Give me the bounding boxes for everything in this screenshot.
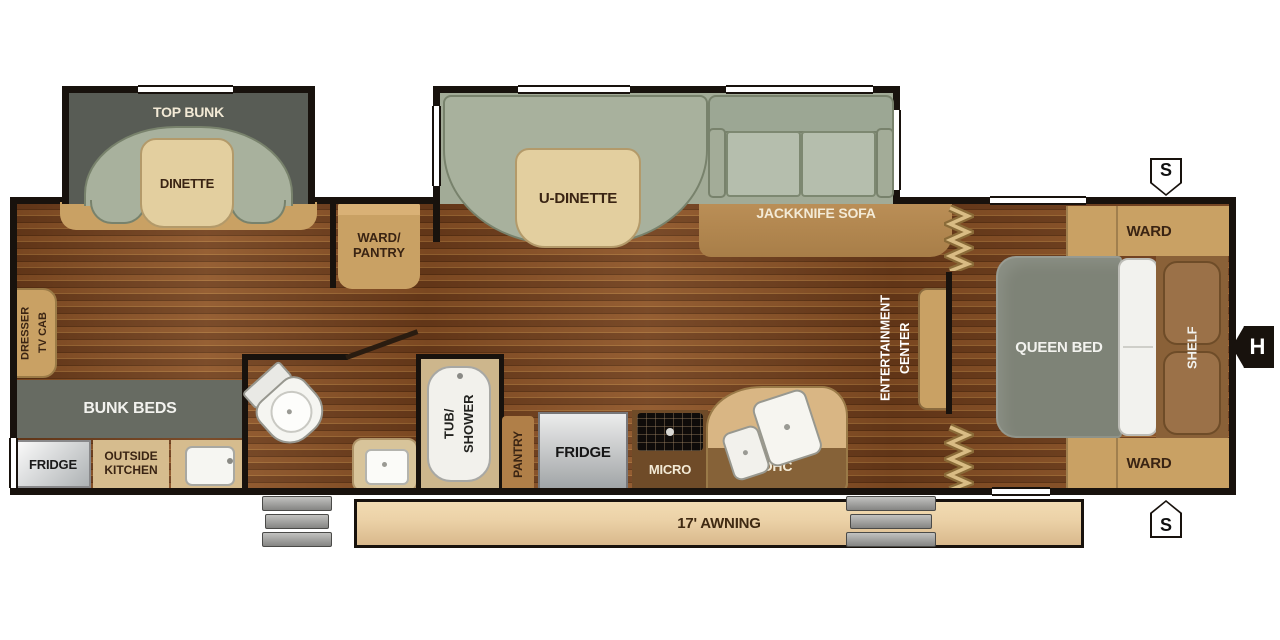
outside-sink-faucet-icon [227, 458, 233, 464]
stabilizer-top-label: S [1152, 160, 1180, 194]
entry-steps [262, 496, 330, 550]
front-slideout-wall-right [308, 86, 315, 204]
ward-pantry-label-line1: WARD/ [357, 231, 400, 246]
kitchen-counter-ohc: OHC [706, 386, 848, 492]
dresser-label-line1: DRESSER [17, 306, 35, 359]
bunk-beds: BUNK BEDS [13, 380, 247, 438]
dinette-table-label: DINETTE [160, 176, 214, 191]
jackknife-sofa-backrest [708, 95, 894, 133]
ward-pantry-wall [330, 202, 336, 288]
jackknife-sofa-cushion-left [726, 131, 801, 197]
window [518, 85, 630, 94]
wall-bottom-2 [1048, 488, 1236, 495]
window [990, 196, 1086, 205]
bathroom-sink [352, 438, 418, 492]
dinette-table: DINETTE [140, 138, 234, 228]
outside-kitchen-label-line1: OUTSIDE [104, 450, 157, 464]
curtain-zigzag-icon [944, 424, 974, 490]
queen-bed: QUEEN BED [996, 256, 1122, 438]
dresser-tv-cabinet: DRESSER TV CAB [13, 288, 57, 378]
stove-grill-icon [637, 413, 703, 451]
outside-kitchen-label-line2: KITCHEN [104, 464, 157, 478]
stabilizer-bottom-label: S [1152, 502, 1180, 536]
window [9, 438, 18, 488]
entertainment-center-panel [918, 288, 948, 410]
awning-bar: 17' AWNING [354, 499, 1084, 548]
jackknife-sofa-label: JACKKNIFE SOFA [716, 205, 916, 221]
dresser-label-line2: TV CAB [35, 313, 53, 354]
outside-kitchen: OUTSIDE KITCHEN [93, 440, 169, 488]
micro-label: MICRO [632, 462, 708, 477]
window [432, 106, 441, 186]
outside-sink [185, 446, 235, 486]
tub-shower-label-line2: SHOWER [459, 395, 479, 454]
pantry-cabinet: PANTRY [502, 416, 534, 492]
rv-floorplan: DRESSER TV CAB BUNK BEDS FRIDGE OUTSIDE … [0, 0, 1280, 640]
window [992, 487, 1050, 496]
tub-shower: TUB/ SHOWER [416, 354, 504, 494]
wall-top-4 [1084, 197, 1236, 204]
hitch-marker: H [1232, 326, 1274, 368]
awning-label: 17' AWNING [677, 515, 761, 532]
jackknife-sofa-armrest-left [708, 128, 726, 198]
entertainment-center-label: ENTERTAINMENT CENTER [874, 284, 918, 412]
wardrobe-top: WARD [1066, 206, 1230, 256]
curtain-zigzag-icon [944, 205, 974, 271]
window [726, 85, 873, 94]
microwave-stove-cabinet: MICRO [632, 410, 708, 492]
wardrobe-bottom: WARD [1066, 438, 1230, 488]
u-dinette-table: U-DINETTE [515, 148, 641, 248]
top-bunk-label: TOP BUNK [69, 104, 308, 120]
u-dinette-table-label: U-DINETTE [539, 190, 617, 207]
outside-fridge: FRIDGE [15, 440, 91, 488]
window [138, 85, 233, 94]
stabilizer-marker-bottom: S [1150, 500, 1182, 538]
kitchen-fridge-label: FRIDGE [555, 444, 610, 461]
pantry-label: PANTRY [511, 431, 525, 478]
jackknife-sofa-cushion-right [801, 131, 876, 197]
jackknife-sofa-armrest-right [876, 128, 894, 198]
headboard-shelf: SHELF [1156, 254, 1228, 442]
shelf-label: SHELF [1156, 254, 1228, 442]
kitchen-fridge: FRIDGE [538, 412, 628, 492]
outside-fridge-label: FRIDGE [29, 457, 77, 472]
tub-shower-label-line1: TUB/ [440, 409, 460, 439]
wall-top-3 [894, 197, 994, 204]
ward-pantry-label-line2: PANTRY [353, 246, 405, 261]
bedroom-partition-wall [946, 272, 952, 414]
entry-steps [846, 496, 934, 550]
wardrobe-top-label: WARD [1126, 223, 1171, 240]
wall-top-2 [308, 197, 439, 204]
bathroom-wall-vertical [242, 354, 248, 494]
bed-pillows [1118, 258, 1158, 436]
stabilizer-marker-top: S [1150, 158, 1182, 196]
bunk-beds-label: BUNK BEDS [83, 400, 176, 418]
wall-bottom-1 [10, 488, 992, 495]
wardrobe-bottom-label: WARD [1126, 455, 1171, 472]
ward-pantry-cabinet: WARD/ PANTRY [338, 203, 420, 289]
front-slideout-wall-left [62, 86, 69, 204]
outside-kitchen-sink-counter [171, 440, 247, 488]
queen-bed-label: QUEEN BED [1015, 339, 1102, 356]
